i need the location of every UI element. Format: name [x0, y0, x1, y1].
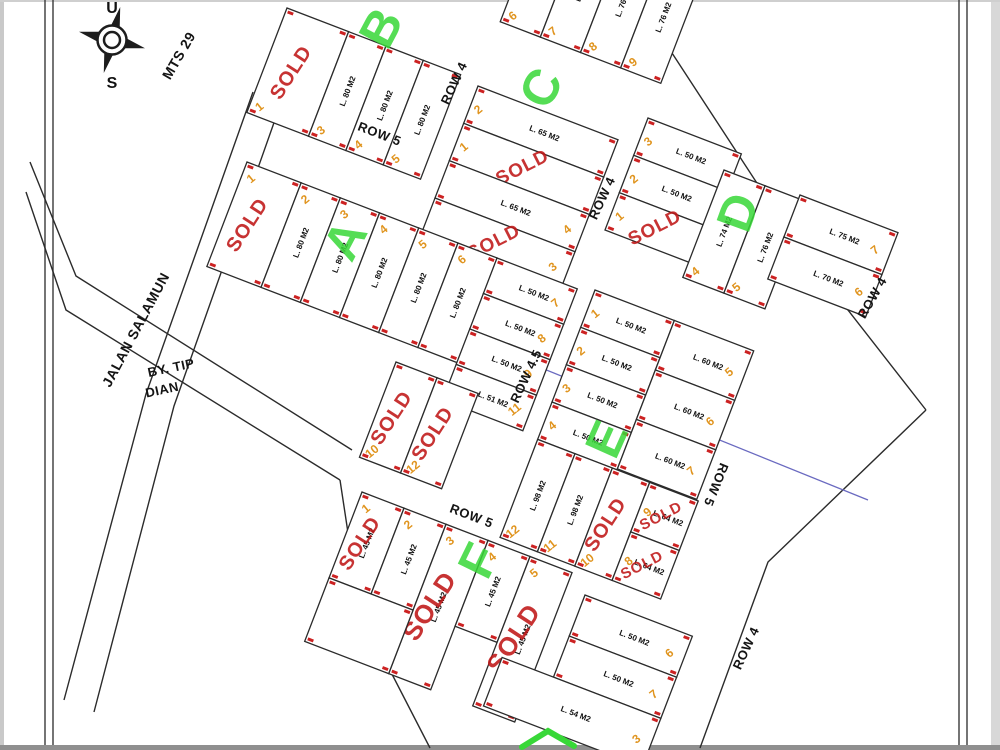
compass-south-label: S — [107, 75, 118, 92]
site-plan-page: U S 1SOLDL. 80 M23L. 80 M24L. 80 M25L. 7… — [0, 0, 1000, 750]
site-plan-drawing: U S 1SOLDL. 80 M23L. 80 M24L. 80 M25L. 7… — [0, 0, 1000, 750]
photo-edge-top — [0, 0, 1000, 2]
compass-inner-circle — [104, 32, 120, 48]
photo-edge-left — [0, 0, 4, 750]
photo-edge-bottom — [0, 745, 1000, 750]
photo-edge-right — [991, 0, 1000, 750]
compass-north-label: U — [106, 0, 118, 17]
